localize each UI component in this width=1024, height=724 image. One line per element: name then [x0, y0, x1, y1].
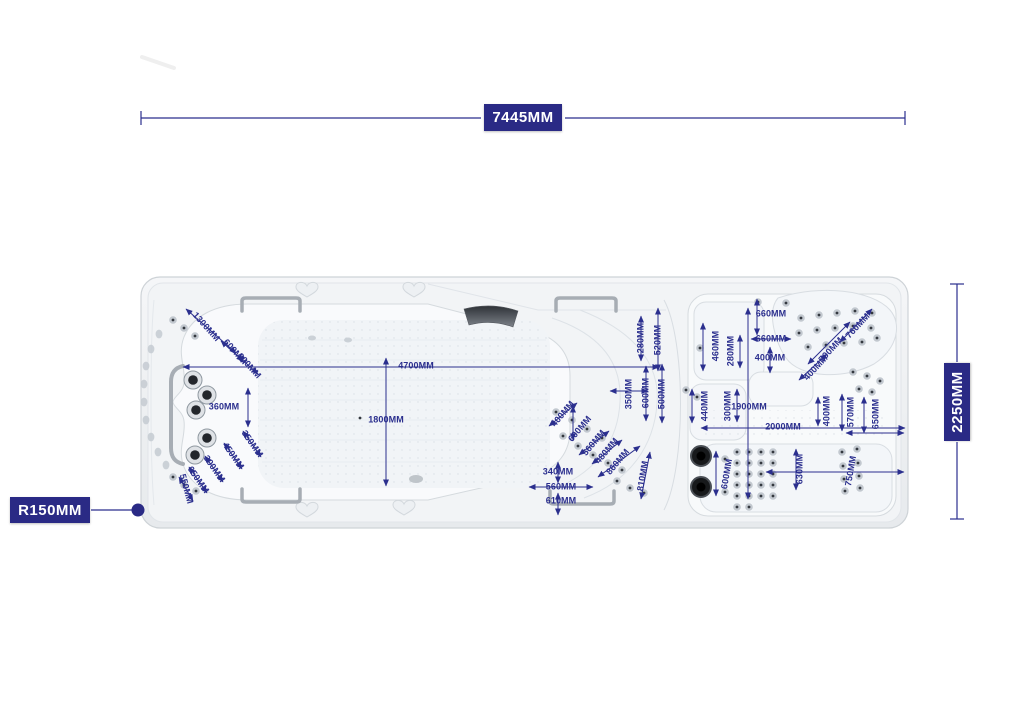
dim-bottom-340: 340MM: [543, 468, 574, 477]
dim-right-660b: 660MM: [756, 335, 787, 344]
dim-mid-500: 500MM: [658, 379, 667, 410]
dim-right-400c: 400MM: [823, 396, 832, 427]
dim-right-400a: 400MM: [755, 354, 786, 363]
dim-right-660a: 660MM: [756, 310, 787, 319]
dim-mid-350: 350MM: [625, 379, 634, 410]
dim-right-1900: 1900MM: [731, 403, 767, 412]
dim-right-440: 440MM: [701, 391, 710, 422]
corner-radius-label: R150MM: [10, 497, 90, 523]
overall-length-label: 7445MM: [484, 104, 562, 131]
dim-right-630: 630MM: [796, 454, 805, 485]
dim-swim-1800: 1800MM: [368, 416, 404, 425]
dim-right-650: 650MM: [872, 399, 881, 430]
dim-right-460: 460MM: [712, 331, 721, 362]
dim-swim-4700: 4700MM: [398, 362, 434, 371]
dim-mid-280: 280MM: [637, 323, 646, 354]
dim-mid-600: 600MM: [642, 378, 651, 409]
dim-bottom-610: 610MM: [546, 497, 577, 506]
radius-pointer-dot: [132, 504, 145, 517]
dim-right-2000: 2000MM: [765, 423, 801, 432]
faint-streak: [142, 57, 174, 68]
dim-mid-520: 520MM: [654, 325, 663, 356]
swim-spa-dimension-diagram: 7445MM 2250MM R150MM 1300MM 600MM 300MM …: [0, 0, 1024, 724]
dim-right-570: 570MM: [847, 397, 856, 428]
overall-width-label: 2250MM: [944, 363, 970, 441]
dim-bottom-560: 560MM: [546, 483, 577, 492]
dim-left-360: 360MM: [209, 403, 240, 412]
dim-right-280: 280MM: [727, 336, 736, 367]
